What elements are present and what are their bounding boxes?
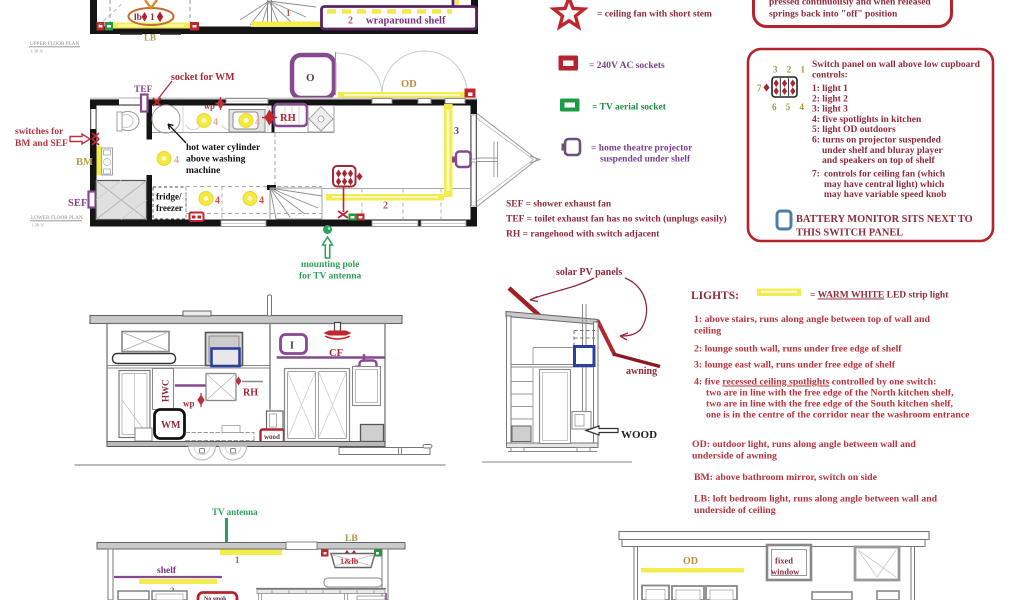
svg-text:4: 4 (213, 117, 218, 128)
svg-text:RH = rangehood with switch adj: RH = rangehood with switch adjacent (506, 230, 660, 240)
svg-text:underside of awning: underside of awning (692, 451, 777, 462)
svg-text:I: I (290, 341, 294, 352)
svg-text:socket for WM: socket for WM (171, 72, 235, 83)
svg-text:BM: above bathroom mirror, swi: BM: above bathroom mirror, switch on sid… (694, 472, 878, 483)
svg-text:1:38 N: 1:38 N (31, 223, 44, 228)
svg-text:controls:: controls: (812, 71, 848, 81)
svg-text:2: 2 (383, 201, 388, 212)
svg-text:under shelf and bluray player: under shelf and bluray player (822, 146, 943, 156)
svg-text:4: 4 (174, 155, 179, 166)
svg-text:wood: wood (264, 433, 280, 441)
svg-text:BATTERY MONITOR SITS NEXT TO: BATTERY MONITOR SITS NEXT TO (796, 214, 973, 225)
svg-text:1: light 1: 1: light 1 (812, 84, 848, 94)
svg-text:OD: OD (683, 556, 698, 567)
svg-text:THIS SWITCH PANEL: THIS SWITCH PANEL (796, 228, 903, 239)
svg-text:SEF = shower exhaust fan: SEF = shower exhaust fan (506, 200, 612, 210)
svg-text:freezer: freezer (156, 203, 183, 213)
svg-text:suspended under shelf: suspended under shelf (600, 155, 691, 165)
svg-text:4: five spotlights in kitchen: 4: five spotlights in kitchen (812, 115, 922, 125)
svg-text:mounting pole: mounting pole (301, 260, 359, 270)
svg-text:hot water cylinder: hot water cylinder (186, 143, 261, 153)
svg-text:may have central light) which: may have central light) which (824, 179, 945, 190)
svg-text:2: 2 (348, 16, 353, 27)
svg-text:LOWER FLOOR PLAN: LOWER FLOOR PLAN (31, 215, 83, 221)
svg-text:lb: lb (134, 13, 142, 23)
svg-text:window: window (771, 567, 800, 577)
svg-text:LB: LB (144, 33, 156, 43)
svg-text:one is in the centre of the co: one is in the centre of the corridor nea… (706, 410, 970, 421)
svg-text:machine: machine (186, 166, 220, 176)
svg-text:awning: awning (626, 366, 657, 377)
svg-text:3: light 3: 3: light 3 (812, 105, 848, 115)
svg-text:Switch panel on wall above low: Switch panel on wall above low cupboard (812, 60, 981, 70)
svg-text:above washing: above washing (186, 155, 246, 165)
svg-text:pressed continuously and when: pressed continuously and when released (769, 0, 931, 8)
svg-text:2: lounge south wall, runs und: 2: lounge south wall, runs under free ed… (694, 344, 902, 355)
svg-text:LB: LB (345, 534, 358, 544)
svg-text:6: turns on projector suspende: 6: turns on projector suspended (812, 136, 942, 146)
svg-text:HWC: HWC (161, 380, 171, 403)
svg-text:4: 4 (259, 196, 264, 207)
svg-text:3 2 1: 3 2 1 (773, 65, 809, 75)
svg-text:O: O (306, 72, 315, 84)
svg-text:= 240V AC sockets: = 240V AC sockets (589, 61, 665, 71)
svg-text:TEF = toilet exhaust fan has n: TEF = toilet exhaust fan has no switch (… (506, 214, 727, 225)
svg-text:controls for ceiling fan (whic: controls for ceiling fan (which (824, 169, 946, 180)
svg-text:shelf: shelf (157, 566, 177, 576)
svg-text:TV antenna: TV antenna (212, 507, 258, 517)
svg-text:No smok: No smok (204, 597, 227, 600)
svg-text:solar PV panels: solar PV panels (556, 267, 622, 278)
svg-text:4: five recessed ceiling spotl: 4: five recessed ceiling spotlights cont… (694, 377, 936, 388)
svg-text:two are in line with the free: two are in line with the free edge of th… (706, 399, 954, 410)
svg-text:BM: BM (76, 157, 93, 168)
svg-text:= home theatre projector: = home theatre projector (591, 144, 693, 154)
svg-text:LIGHTS:: LIGHTS: (691, 290, 739, 302)
svg-text:SEF: SEF (68, 198, 87, 209)
svg-text:UPPER FLOOR PLAN: UPPER FLOOR PLAN (30, 41, 80, 47)
svg-text:switches for: switches for (15, 127, 64, 137)
svg-text:fixed: fixed (775, 556, 793, 566)
svg-text:6 5 4: 6 5 4 (772, 102, 808, 112)
svg-text:4: 4 (255, 117, 260, 128)
svg-text:1: 1 (150, 13, 155, 23)
svg-text:OD: outdoor light, runs along: OD: outdoor light, runs along angle betw… (692, 439, 916, 450)
svg-text:5: light OD outdoors: 5: light OD outdoors (812, 125, 896, 135)
svg-text:= ceiling fan with short stem: = ceiling fan with short stem (597, 10, 712, 20)
svg-text:7:: 7: (812, 170, 820, 180)
svg-text:two are in line with the free: two are in line with the free edge of th… (706, 388, 954, 399)
svg-text:3: 3 (454, 126, 459, 137)
svg-text:1&lb: 1&lb (340, 556, 359, 566)
svg-text:3: lounge east wall, runs unde: 3: lounge east wall, runs under free edg… (694, 360, 896, 371)
svg-text:= WARM WHITE LED strip light: = WARM WHITE LED strip light (810, 291, 949, 301)
svg-text:and speakers on top of shelf: and speakers on top of shelf (822, 156, 936, 166)
svg-text:WM: WM (161, 420, 181, 431)
svg-text:1: 1 (286, 8, 291, 18)
svg-text:RH: RH (280, 113, 296, 124)
svg-text:may have variable speed knob: may have variable speed knob (824, 190, 946, 200)
svg-text:ceiling: ceiling (694, 326, 721, 337)
svg-text:wp: wp (204, 101, 215, 111)
svg-text:WOOD: WOOD (621, 429, 657, 441)
svg-text:= TV aerial socket: = TV aerial socket (592, 103, 667, 113)
svg-text:OD: OD (401, 79, 417, 90)
svg-text:1: 1 (235, 555, 240, 565)
svg-text:for TV antenna: for TV antenna (299, 272, 362, 282)
svg-text:RH: RH (243, 388, 258, 399)
svg-text:BM and SEF: BM and SEF (15, 139, 68, 149)
svg-text:2: light 2: 2: light 2 (812, 94, 848, 104)
svg-text:wraparound shelf: wraparound shelf (366, 16, 446, 27)
svg-text:fridge/: fridge/ (156, 192, 182, 202)
svg-text:springs back into "off" positi: springs back into "off" position (769, 10, 898, 20)
svg-text:1: above stairs, runs along an: 1: above stairs, runs along angle betwee… (694, 314, 931, 325)
svg-text:underside of ceiling: underside of ceiling (694, 505, 776, 516)
svg-text:4: 4 (215, 196, 220, 207)
svg-text:LB: loft bedroom light, runs a: LB: loft bedroom light, runs along angle… (694, 494, 938, 505)
svg-text:1:38 N: 1:38 N (30, 49, 43, 54)
svg-text:wp: wp (183, 399, 195, 409)
svg-text:7: 7 (757, 83, 762, 93)
